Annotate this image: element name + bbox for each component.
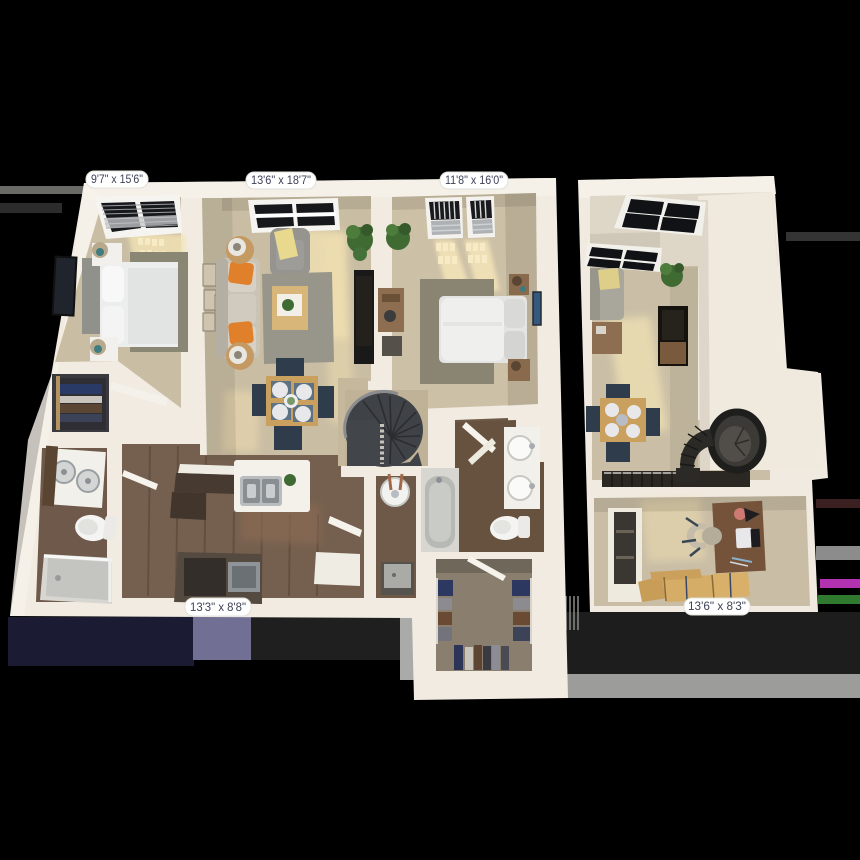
svg-text:11'8" x 16'0": 11'8" x 16'0": [445, 175, 503, 187]
svg-text:13'3" x 8'8": 13'3" x 8'8": [190, 602, 246, 614]
svg-text:13'6" x 8'3": 13'6" x 8'3": [688, 601, 746, 613]
svg-text:13'6" x 18'7": 13'6" x 18'7": [251, 175, 311, 187]
svg-text:9'7" x 15'6": 9'7" x 15'6": [91, 174, 143, 186]
